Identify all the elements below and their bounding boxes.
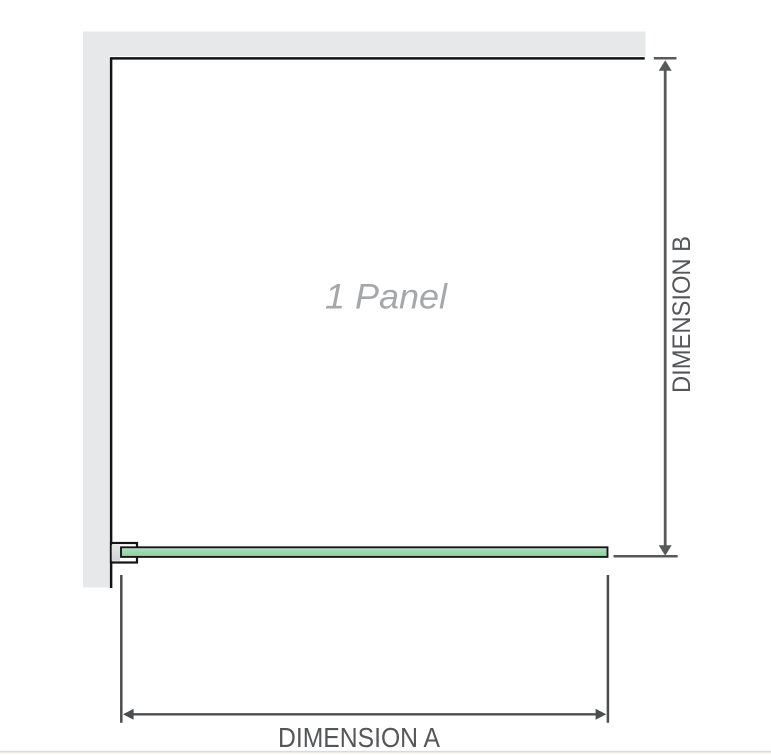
svg-text:DIMENSION B: DIMENSION B bbox=[669, 236, 696, 393]
svg-text:1 Panel: 1 Panel bbox=[325, 278, 448, 317]
svg-text:DIMENSION A: DIMENSION A bbox=[278, 722, 441, 753]
